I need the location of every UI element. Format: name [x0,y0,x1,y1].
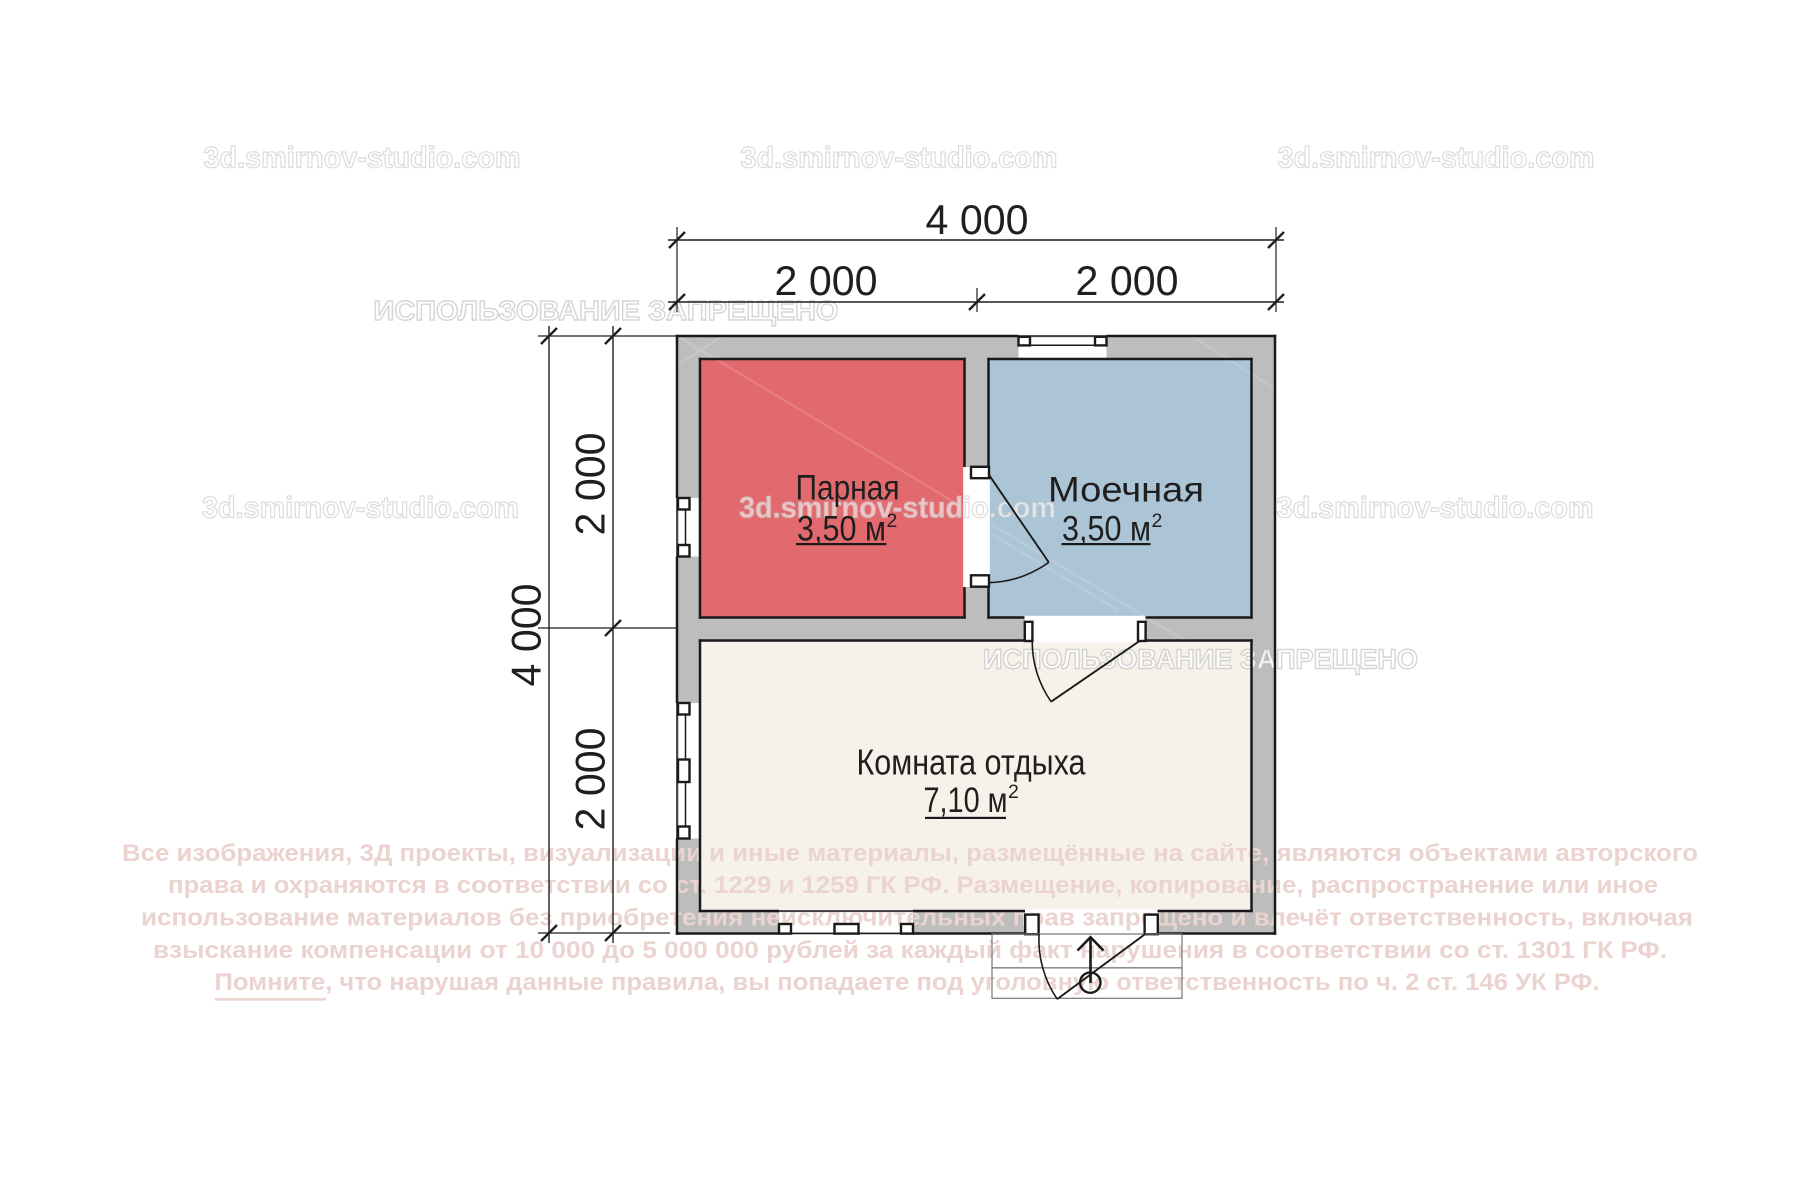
svg-text:3,50 м: 3,50 м [1062,510,1151,549]
svg-text:2: 2 [1008,781,1019,803]
svg-text:ИСПОЛЬЗОВАНИЕ ЗАПРЕЩЕНО: ИСПОЛЬЗОВАНИЕ ЗАПРЕЩЕНО [983,644,1418,675]
svg-text:ИСПОЛЬЗОВАНИЕ ЗАПРЕЩЕНО: ИСПОЛЬЗОВАНИЕ ЗАПРЕЩЕНО [374,295,839,326]
svg-text:использование материалов без п: использование материалов без приобретени… [141,905,1693,932]
svg-text:права и охраняются в соответст: права и охраняются в соответствии со ст.… [168,872,1658,899]
svg-text:2 000: 2 000 [567,433,614,536]
svg-text:2: 2 [1152,510,1163,532]
svg-text:3d.smirnov-studio.com: 3d.smirnov-studio.com [202,492,519,525]
svg-text:4 000: 4 000 [503,584,550,687]
svg-text:взыскание компенсации от 10 00: взыскание компенсации от 10 000 до 5 000… [153,937,1667,964]
svg-text:7,10 м: 7,10 м [924,781,1008,820]
svg-text:2: 2 [887,510,898,532]
svg-text:Комната отдыха: Комната отдыха [857,742,1087,783]
svg-text:Помните, что нарушая данные пр: Помните, что нарушая данные правила, вы … [215,969,1600,996]
svg-text:2 000: 2 000 [567,728,614,831]
svg-text:2 000: 2 000 [1076,257,1179,304]
svg-text:2 000: 2 000 [775,257,878,304]
svg-text:4 000: 4 000 [926,196,1029,243]
svg-text:3d.smirnov-studio.com: 3d.smirnov-studio.com [741,142,1058,175]
svg-text:3,50 м: 3,50 м [797,510,886,549]
svg-text:Моечная: Моечная [1048,471,1204,510]
svg-text:Все изображения, 3Д проекты, в: Все изображения, 3Д проекты, визуализаци… [122,840,1698,867]
svg-text:Парная: Парная [796,469,900,508]
svg-text:3d.smirnov-studio.com: 3d.smirnov-studio.com [1278,142,1595,175]
svg-text:3d.smirnov-studio.com: 3d.smirnov-studio.com [204,142,521,175]
svg-text:3d.smirnov-studio.com: 3d.smirnov-studio.com [1277,492,1594,525]
